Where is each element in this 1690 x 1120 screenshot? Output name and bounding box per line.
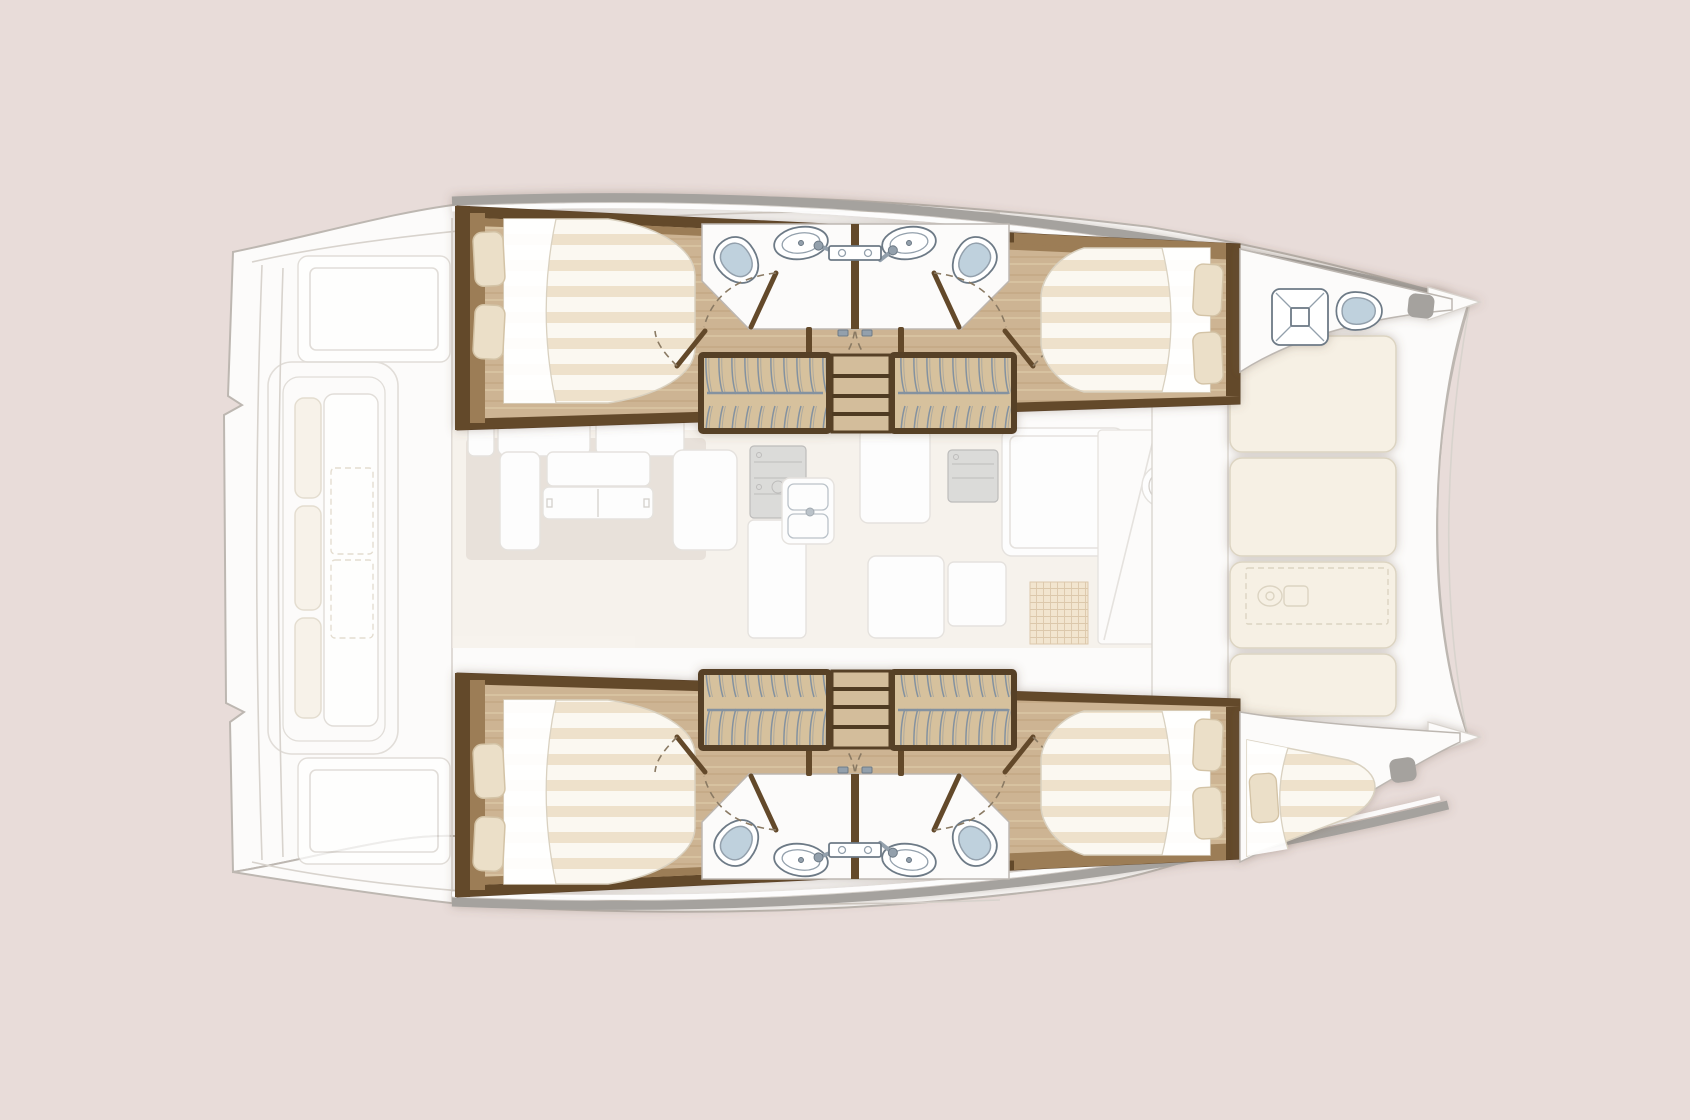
bow-hatch-icon (1272, 289, 1328, 345)
saloon (452, 408, 1184, 648)
faucet (806, 508, 814, 516)
deck-hatch-panel (298, 256, 450, 362)
counter (948, 562, 1006, 626)
forepeak-toilet (1336, 292, 1382, 330)
bow-locker (1388, 756, 1417, 783)
coffee-table (543, 487, 653, 519)
side-seat (500, 452, 540, 550)
cockpit-bench-sofa (283, 377, 385, 741)
seat (673, 450, 737, 550)
sliding-door (1098, 430, 1160, 644)
back-cushion (295, 398, 321, 498)
bench-seat (547, 452, 650, 486)
entry-grid-mat (1030, 582, 1088, 644)
oven-appliance (948, 450, 998, 502)
floor-plan-page (0, 0, 1690, 1120)
deck-hatch-panel (298, 758, 450, 864)
pillow (1249, 773, 1279, 823)
sunpads (1230, 336, 1396, 716)
floor-plan-canvas (0, 0, 1690, 1120)
sunpad-row-3 (1230, 562, 1396, 648)
galley-double-sink (782, 478, 834, 544)
bow-locker (1407, 293, 1435, 320)
sunpad-row-2 (1230, 458, 1396, 556)
sunpad-row-4 (1230, 654, 1396, 716)
counter (868, 556, 944, 638)
back-cushion (295, 506, 321, 610)
back-cushion (295, 618, 321, 718)
counter (860, 428, 930, 523)
